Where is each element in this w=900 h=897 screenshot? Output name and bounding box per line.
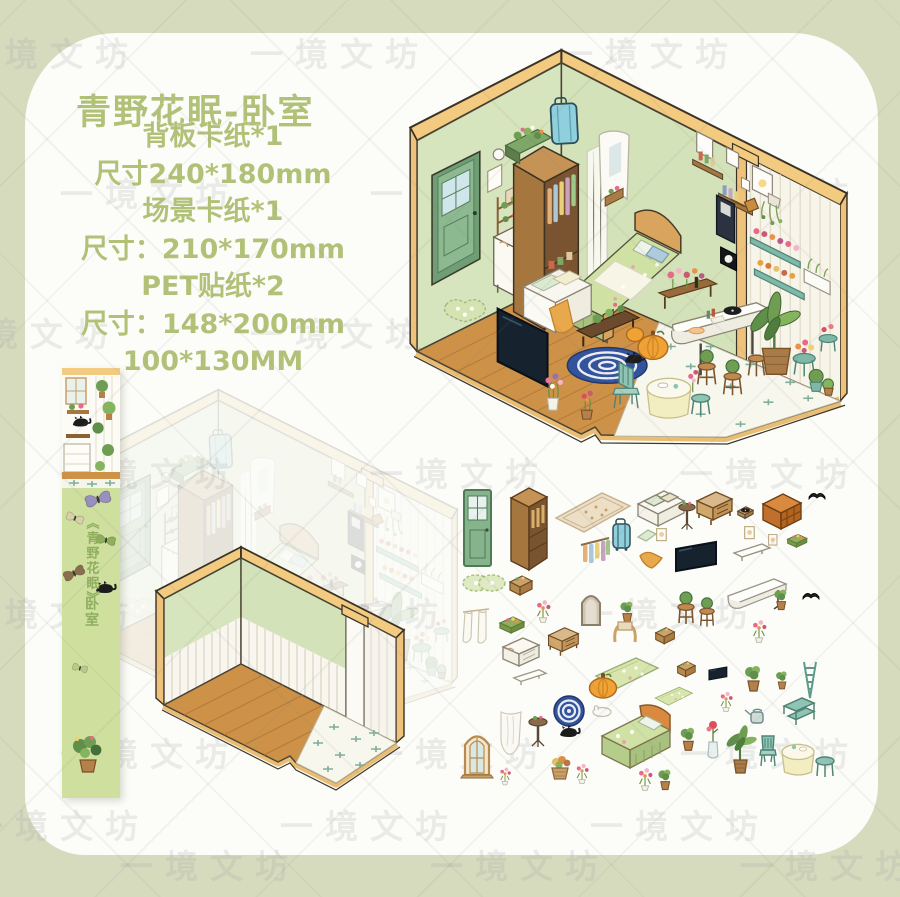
sticker-picture xyxy=(769,535,777,546)
sticker-cabinetorange xyxy=(763,494,801,529)
sticker-shelf2tier xyxy=(784,698,814,725)
sticker-plant xyxy=(658,770,670,790)
sticker-vaserose xyxy=(707,721,719,758)
bookmark-strip: 《青野花眠》 卧室 xyxy=(62,368,120,798)
sticker-record xyxy=(738,507,753,519)
sticker-stoolplant xyxy=(678,592,694,624)
sticker-sideboard xyxy=(697,492,732,525)
sticker-daybed xyxy=(638,491,684,526)
sticker-ladder xyxy=(804,662,816,698)
sticker-picture xyxy=(745,527,755,539)
sticker-plant xyxy=(620,602,632,622)
spec-line: PET贴纸*2 xyxy=(48,268,378,306)
sticker-shelftan xyxy=(656,628,675,644)
sticker-picture xyxy=(657,529,667,541)
sticker-bed xyxy=(602,705,670,768)
sticker-lacerug xyxy=(463,575,505,591)
sticker-crate xyxy=(500,617,524,633)
sticker-flower xyxy=(500,768,510,785)
spec-line: 尺寸：148*200mm xyxy=(48,306,378,344)
bookmark-room-label: 卧室 xyxy=(81,596,101,628)
sticker-pillow xyxy=(638,530,656,541)
sticker-plant xyxy=(681,728,695,751)
sticker-flower xyxy=(753,620,766,642)
sticker-flower xyxy=(721,692,733,712)
sticker-flower xyxy=(577,764,589,784)
sticker-archmirror xyxy=(582,596,600,625)
sticker-tableset xyxy=(782,745,834,778)
spec-line: 场景卡纸*1 xyxy=(48,193,378,231)
sticker-watercan xyxy=(745,709,763,723)
sticker-plant xyxy=(776,671,787,689)
sticker-quilt xyxy=(655,687,692,705)
sticker-tv xyxy=(709,667,727,680)
sticker-book xyxy=(809,493,825,499)
sticker-sheercurtain xyxy=(501,712,521,754)
sticker-sheet xyxy=(452,474,878,854)
sticker-suitcase xyxy=(613,519,630,551)
sticker-flower xyxy=(639,768,652,790)
sticker-sideboard xyxy=(549,628,579,656)
sticker-shelfL xyxy=(514,670,546,685)
sticker-windowarch xyxy=(461,737,493,779)
sticker-crate xyxy=(788,534,807,547)
sticker-ruground xyxy=(554,696,584,726)
sticker-dresserw xyxy=(503,638,539,666)
sticker-bunny xyxy=(593,706,611,717)
sticker-planttall xyxy=(725,724,758,773)
sticker-stoolplant xyxy=(700,598,714,627)
bookmark-series-title: 《青野花眠》 xyxy=(82,516,101,606)
sticker-tv xyxy=(676,542,716,571)
spec-line: 背板卡纸*1 xyxy=(48,118,378,156)
spec-line: 尺寸240*180mm xyxy=(48,156,378,194)
spec-line: 尺寸：210*170mm xyxy=(48,231,378,269)
sticker-shelftan xyxy=(678,662,696,677)
sticker-curtain xyxy=(463,609,489,643)
sticker-wardrobe xyxy=(511,488,547,570)
sticker-cat xyxy=(560,725,580,737)
sticker-pedestal xyxy=(529,716,547,747)
sticker-shelfL xyxy=(734,544,770,561)
sticker-book xyxy=(803,593,819,599)
sticker-shelftan xyxy=(510,576,532,595)
sticker-towel xyxy=(640,552,662,568)
sticker-door xyxy=(464,490,491,566)
scene-card-illustration xyxy=(128,495,458,815)
sticker-plantbasket xyxy=(552,756,570,779)
sticker-pedestal xyxy=(679,502,695,530)
sticker-clothesrack xyxy=(581,538,610,563)
spec-list: 背板卡纸*1 尺寸240*180mm 场景卡纸*1 尺寸：210*170mm P… xyxy=(48,118,378,381)
sticker-horserack xyxy=(615,622,636,642)
sticker-plant xyxy=(745,666,760,691)
product-image-canvas: 一境文坊一境文坊一境文坊一境文坊一境文坊一境文坊一境文坊一境文坊一境文坊一境文坊… xyxy=(0,0,900,897)
sticker-flower xyxy=(537,600,550,622)
sticker-chairteal xyxy=(760,736,776,766)
bedroom-illustration xyxy=(402,48,880,446)
